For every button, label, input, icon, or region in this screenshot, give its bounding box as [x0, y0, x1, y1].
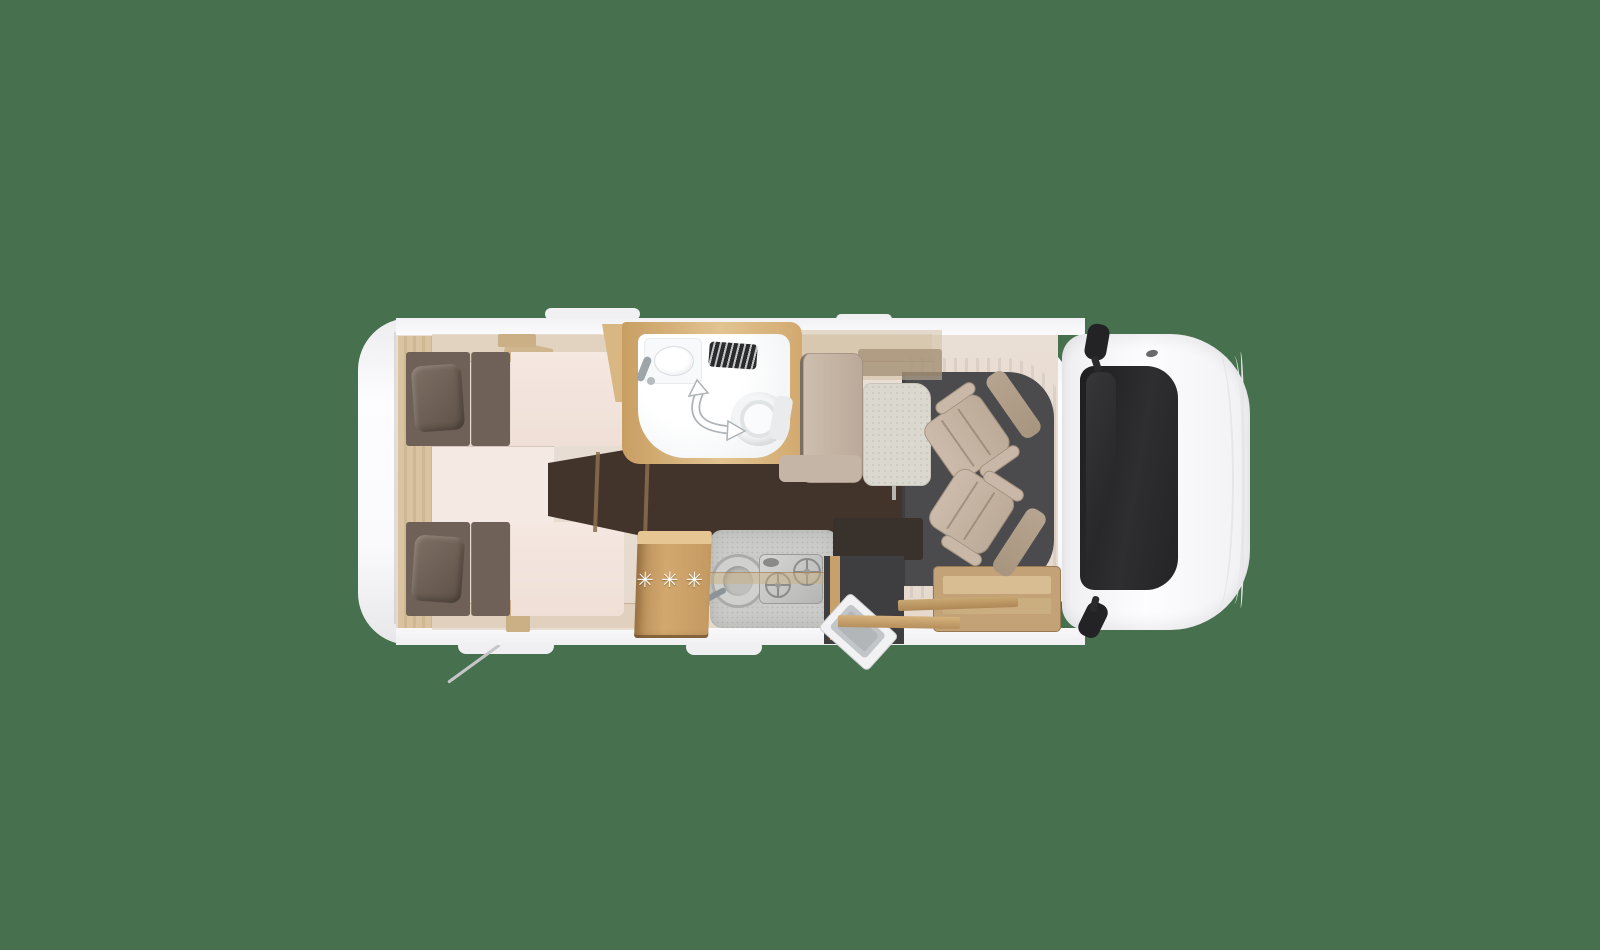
hob-control	[763, 558, 779, 567]
dinette-shelf	[858, 349, 942, 376]
vent-grille-icon	[708, 341, 758, 369]
bed-bottom-mattress-mid	[471, 522, 510, 616]
bed-top-mattress-mid	[471, 352, 510, 446]
bathroom-sink-bowl	[654, 346, 694, 376]
bathroom-faucet-knob	[647, 377, 655, 385]
floorplan-canvas: ✳✳✳	[0, 0, 1600, 950]
windshield-reflection	[1086, 372, 1116, 584]
dinette-bench-cushion	[779, 455, 861, 482]
between-beds-area	[432, 446, 554, 526]
entry-step-1	[943, 576, 1051, 594]
bed-top-bedding	[511, 352, 624, 446]
fridge-cabinet: ✳✳✳	[634, 531, 712, 638]
front-bumper-seam	[1236, 352, 1245, 608]
freezer-rating-symbol: ✳✳✳	[636, 568, 711, 592]
fridge-cabinet-top	[637, 531, 711, 544]
door-wood-rail	[838, 615, 960, 629]
bed-bottom-pillow	[411, 534, 465, 603]
kitchen-dark-unit	[833, 518, 923, 560]
bed-top-pillow	[411, 363, 465, 432]
bed-bottom-bedding	[511, 522, 624, 616]
dinette-table-leg	[892, 486, 896, 500]
